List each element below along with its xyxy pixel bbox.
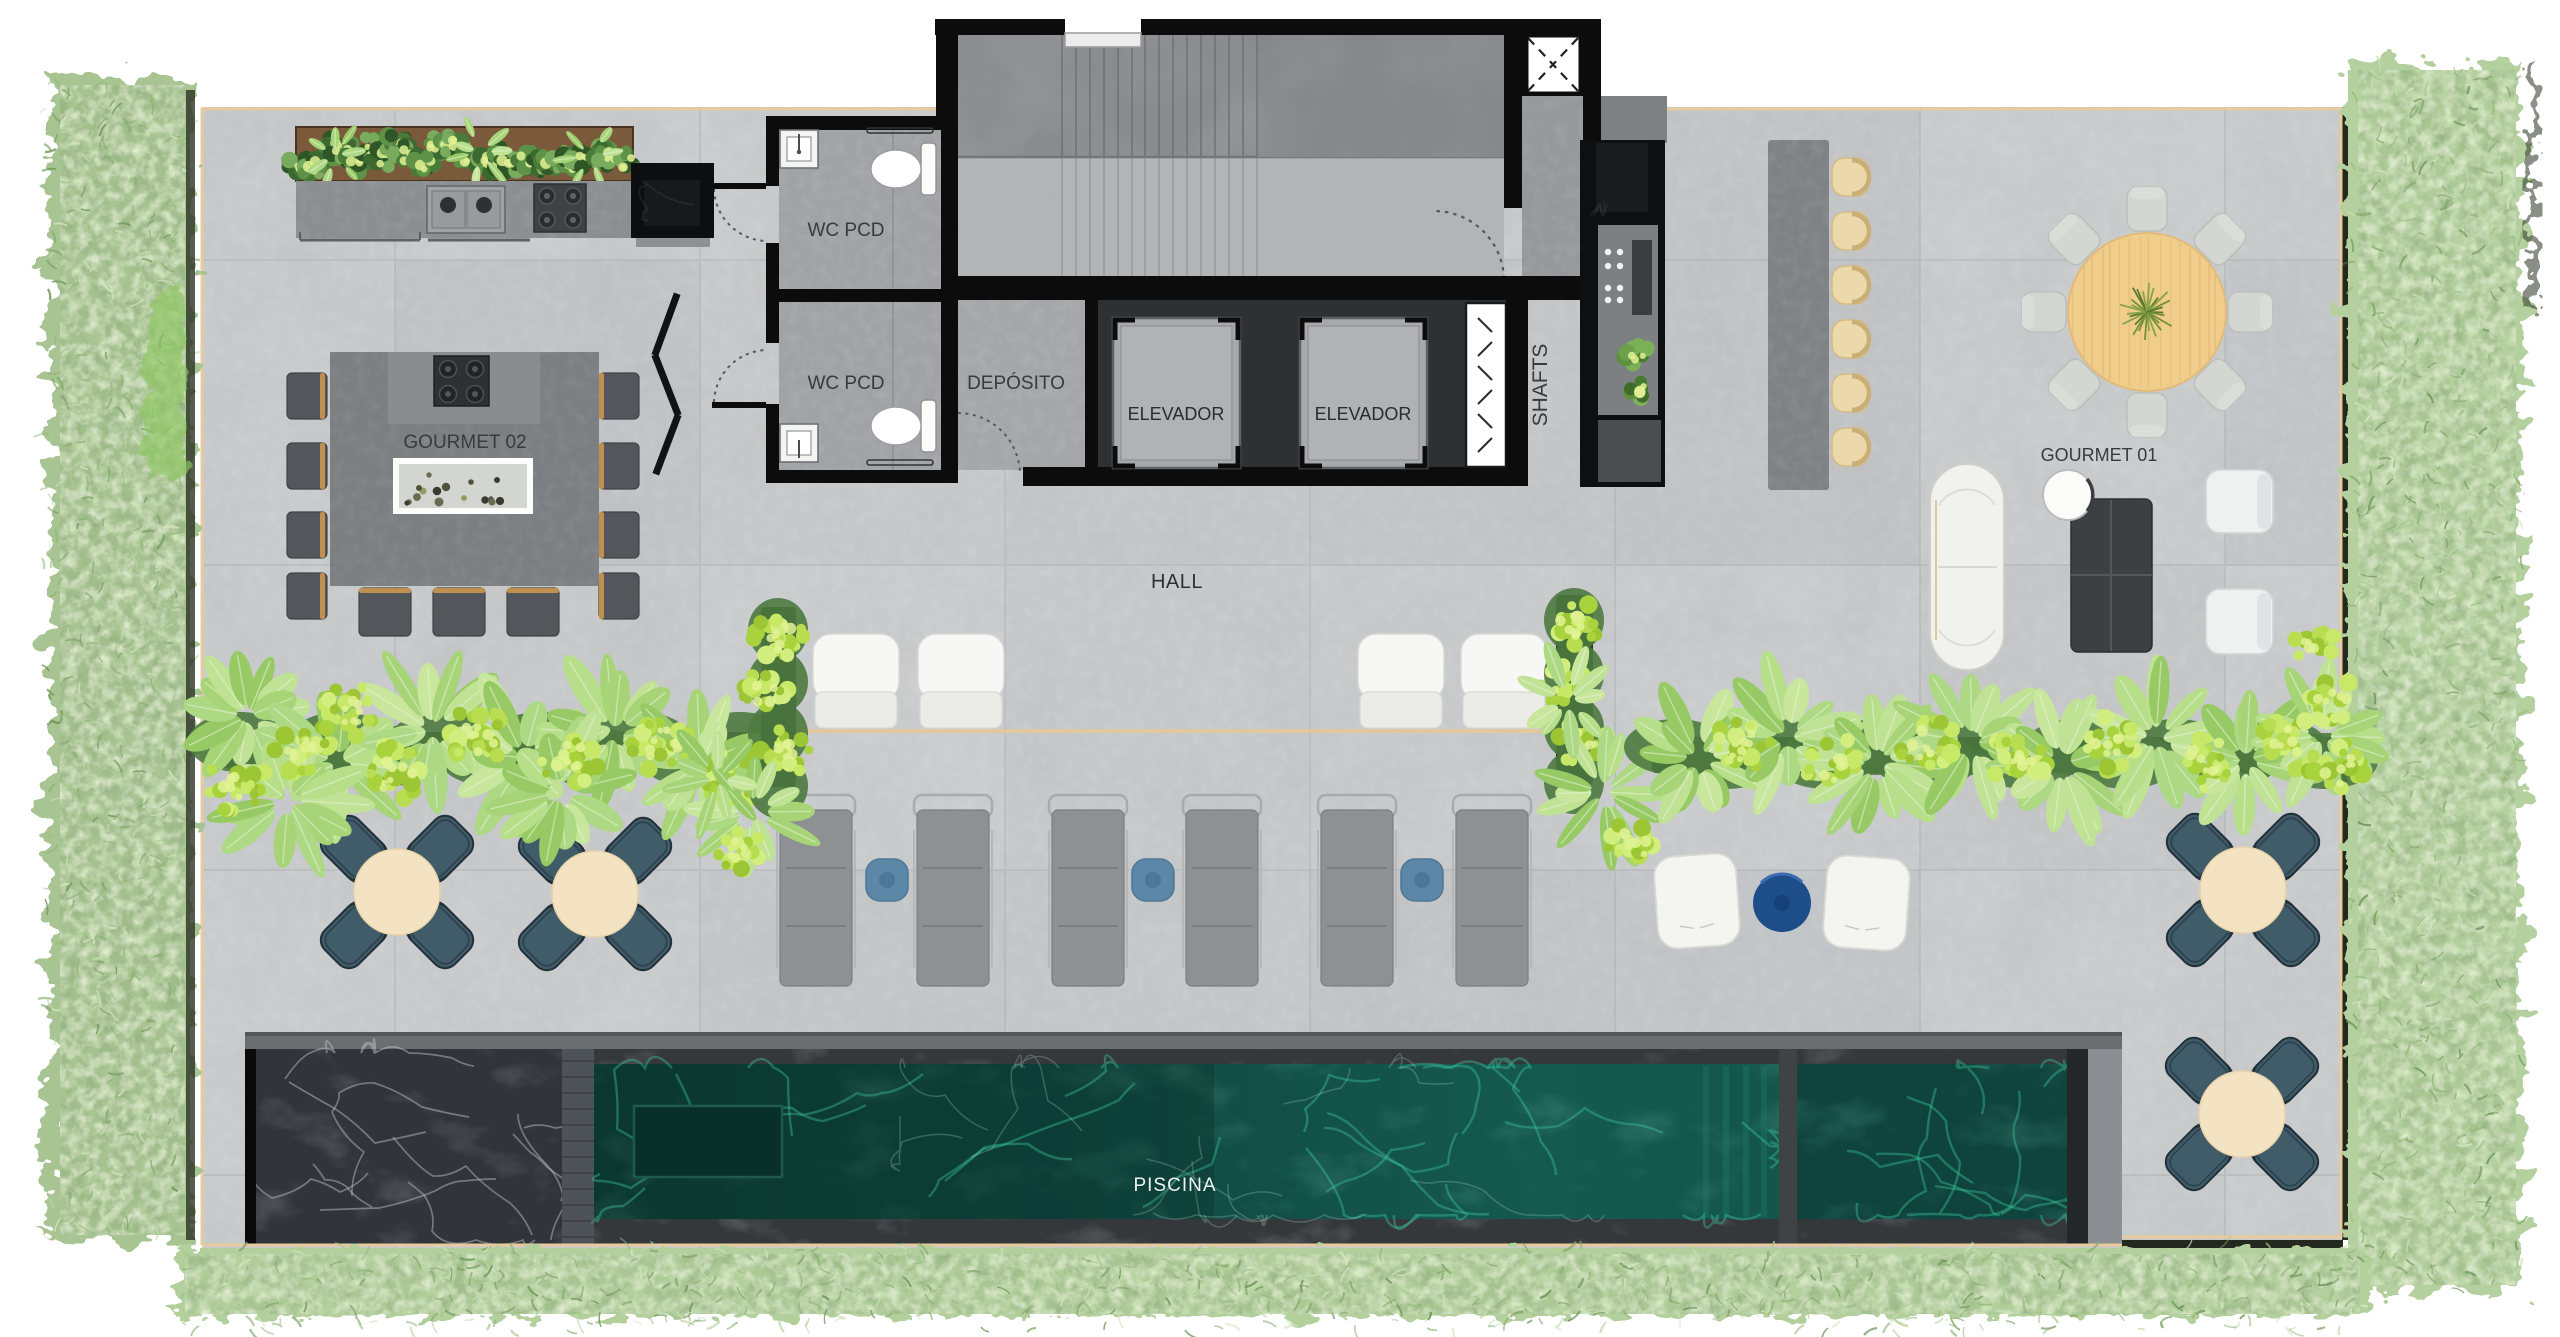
svg-text:ELEVADOR: ELEVADOR: [1315, 404, 1412, 424]
svg-text:PISCINA: PISCINA: [1133, 1175, 1216, 1196]
svg-text:WC PCD: WC PCD: [807, 220, 884, 241]
svg-text:DEPÓSITO: DEPÓSITO: [967, 372, 1065, 394]
svg-text:GOURMET 01: GOURMET 01: [2041, 445, 2158, 465]
svg-text:GOURMET 02: GOURMET 02: [403, 432, 526, 453]
svg-text:ELEVADOR: ELEVADOR: [1128, 404, 1225, 424]
svg-text:SHAFTS: SHAFTS: [1529, 344, 1552, 427]
svg-text:HALL: HALL: [1151, 571, 1203, 593]
svg-text:WC PCD: WC PCD: [807, 373, 884, 394]
